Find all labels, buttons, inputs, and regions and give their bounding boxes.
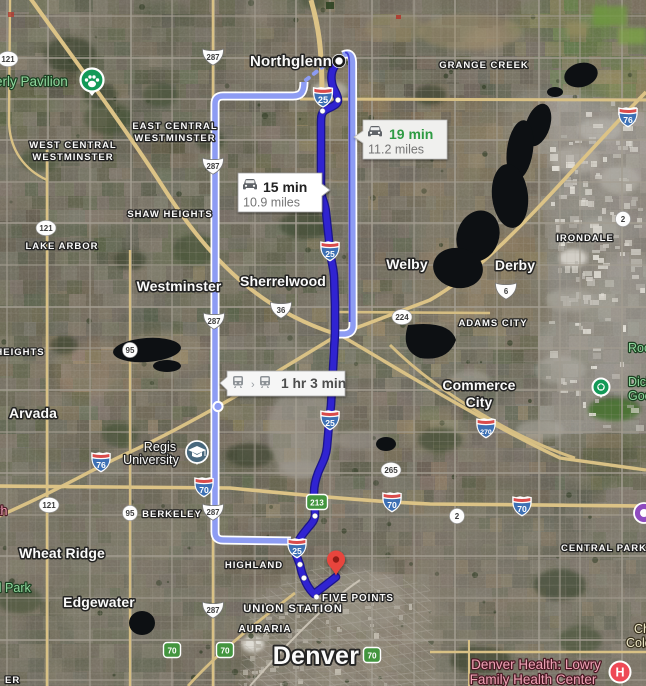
svg-text:76: 76 [96,460,106,470]
svg-text:95: 95 [126,509,135,518]
svg-text:Arvada: Arvada [9,405,57,421]
svg-text:Dick: Dick [628,375,646,389]
svg-text:Family Health Center: Family Health Center [470,672,597,686]
svg-text:36: 36 [277,306,286,315]
svg-text:Wheat Ridge: Wheat Ridge [19,545,105,561]
svg-text:287: 287 [206,162,219,171]
svg-text:15 min: 15 min [263,179,307,195]
svg-text:70: 70 [199,485,209,495]
svg-text:HEIGHTS: HEIGHTS [0,347,45,358]
svg-text:HIGHLAND: HIGHLAND [225,560,283,571]
svg-text:Derby: Derby [495,257,535,273]
svg-text:25: 25 [325,249,335,259]
svg-text:265: 265 [384,466,398,475]
svg-text:11.2 miles: 11.2 miles [368,143,424,157]
svg-text:th: th [0,504,7,518]
svg-text:ll Park: ll Park [0,581,31,595]
svg-text:76: 76 [623,115,633,125]
svg-text:Regis: Regis [144,440,176,454]
svg-text:287: 287 [206,53,219,62]
svg-text:70: 70 [167,646,177,655]
svg-text:121: 121 [42,501,56,510]
svg-text:2: 2 [455,512,460,521]
svg-text:UNION STATION: UNION STATION [243,603,343,615]
svg-text:erly Pavilion: erly Pavilion [0,74,68,89]
svg-text:Edgewater: Edgewater [63,594,135,610]
svg-text:Sherrelwood: Sherrelwood [240,273,326,289]
svg-text:287: 287 [206,606,219,615]
svg-text:AURARIA: AURARIA [238,624,291,635]
svg-text:CENTRAL PARK: CENTRAL PARK [561,543,646,554]
svg-text:City: City [466,394,493,410]
svg-text:Cold: Cold [626,636,646,650]
svg-text:Rock: Rock [628,341,646,355]
svg-text:Ch: Ch [634,622,646,636]
svg-text:IRONDALE: IRONDALE [556,233,614,244]
svg-text:10.9 miles: 10.9 miles [243,196,300,210]
svg-text:25: 25 [325,418,335,428]
svg-text:ADAMS CITY: ADAMS CITY [458,318,527,329]
svg-text:70: 70 [220,646,230,655]
svg-text:EAST CENTRAL: EAST CENTRAL [132,121,217,132]
svg-text:University: University [123,453,180,467]
svg-text:Westminster: Westminster [137,278,222,294]
svg-text:1 hr 3 min: 1 hr 3 min [281,376,346,391]
svg-text:70: 70 [367,651,377,660]
svg-text:25: 25 [318,95,328,105]
svg-text:WESTMINSTER: WESTMINSTER [32,152,113,163]
svg-text:Denver: Denver [273,642,360,670]
svg-text:287: 287 [207,317,220,326]
svg-text:2: 2 [621,215,626,224]
svg-text:70: 70 [387,500,397,510]
svg-text:Denver Health: Lowry: Denver Health: Lowry [471,657,601,672]
svg-text:WEST CENTRAL: WEST CENTRAL [29,140,116,151]
svg-text:WESTMINSTER: WESTMINSTER [134,133,215,144]
svg-text:25: 25 [292,546,302,556]
svg-text:6: 6 [504,287,509,296]
svg-text:121: 121 [1,55,15,64]
svg-text:H: H [615,666,624,680]
svg-text:GRANGE CREEK: GRANGE CREEK [439,60,529,71]
svg-text:›: › [251,379,255,391]
svg-text:BERKELEY: BERKELEY [142,509,202,520]
svg-text:LAKE ARBOR: LAKE ARBOR [26,241,99,252]
svg-text:224: 224 [395,313,409,322]
svg-text:213: 213 [310,498,324,507]
svg-text:Goo: Goo [628,389,646,403]
svg-text:SHAW HEIGHTS: SHAW HEIGHTS [127,209,212,220]
svg-text:ER: ER [5,675,20,686]
svg-text:270: 270 [480,429,492,436]
svg-text:Welby: Welby [386,256,428,272]
svg-text:Northglenn: Northglenn [250,53,332,70]
svg-text:287: 287 [206,508,219,517]
svg-text:Commerce: Commerce [442,377,515,393]
svg-text:70: 70 [517,504,527,514]
svg-text:121: 121 [39,224,53,233]
svg-text:19 min: 19 min [389,126,433,142]
svg-text:95: 95 [126,346,135,355]
